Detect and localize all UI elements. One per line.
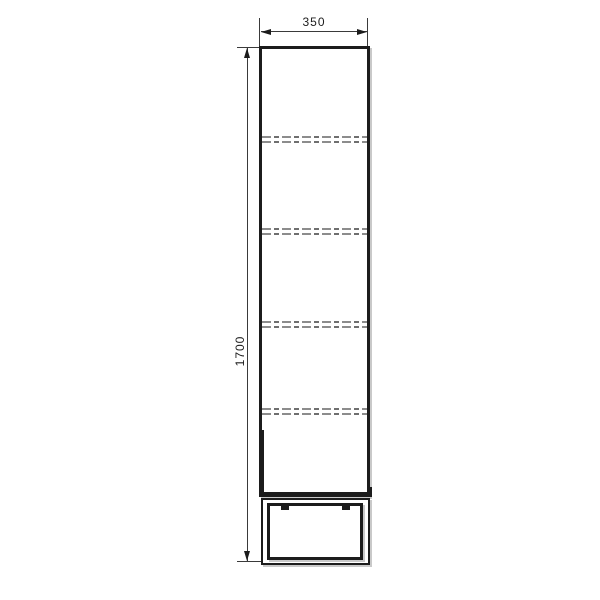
drawing-canvas: 350 1700	[0, 0, 600, 600]
hidden-shelf-line	[262, 408, 367, 410]
hinge-tab-left	[281, 505, 289, 510]
cabinet-body-outline	[259, 46, 370, 497]
extension-line-left-bottom	[237, 561, 261, 562]
hidden-shelf-line	[262, 413, 367, 415]
hidden-shelf-line	[262, 233, 367, 235]
door-edge-line	[261, 430, 264, 494]
height-dimension-label: 1700	[234, 325, 248, 377]
arrowhead-up-icon	[244, 48, 250, 58]
hinge-tab-right	[342, 505, 350, 510]
dimension-line-width	[261, 31, 367, 32]
hidden-shelf-line	[262, 321, 367, 323]
arrowhead-left-icon	[261, 29, 271, 35]
width-dimension-label: 350	[261, 16, 367, 29]
dimension-line-height	[247, 48, 248, 561]
hidden-shelf-line	[262, 228, 367, 230]
plinth-inner-frame	[267, 503, 363, 560]
side-panel-notch	[367, 487, 372, 497]
hidden-shelf-line	[262, 141, 367, 143]
extension-line-top-right	[367, 18, 368, 46]
hidden-shelf-line	[262, 136, 367, 138]
extension-line-top-left	[259, 18, 260, 46]
arrowhead-right-icon	[357, 29, 367, 35]
arrowhead-down-icon	[244, 551, 250, 561]
hidden-shelf-line	[262, 326, 367, 328]
